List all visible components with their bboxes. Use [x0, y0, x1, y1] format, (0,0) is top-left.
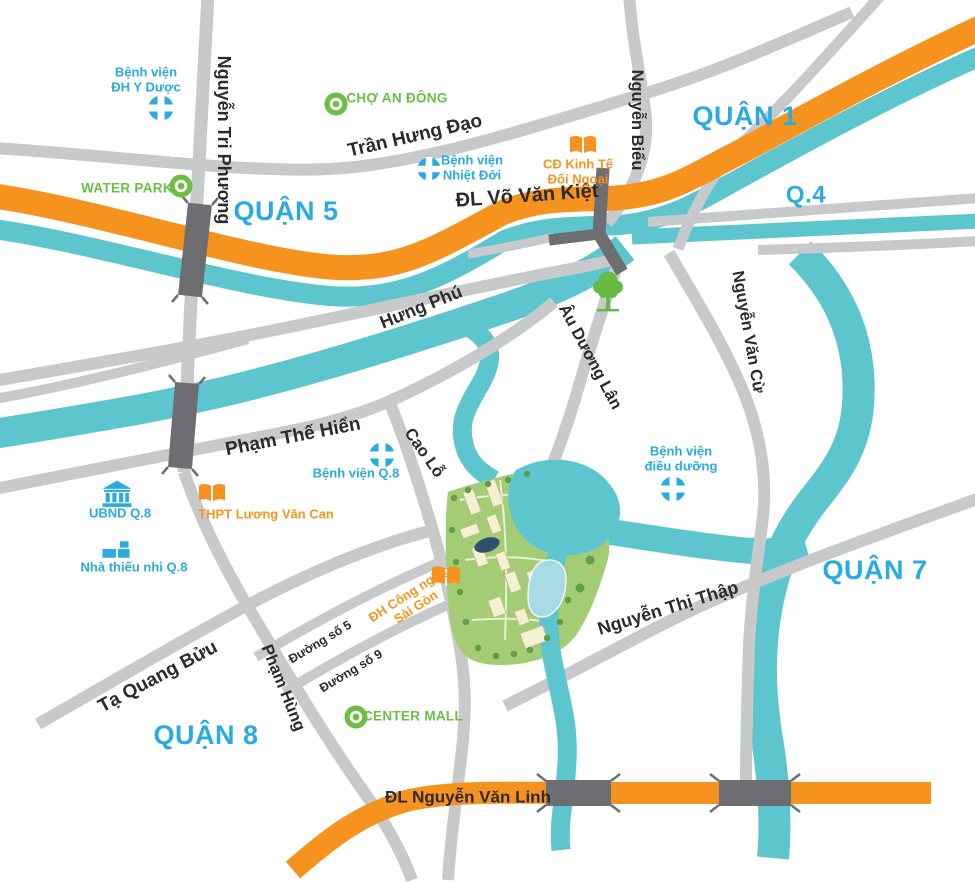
road-label-nguyen-tri-phuong: Nguyễn Tri Phương — [214, 56, 234, 225]
poi-label-bv-nhiet-doi: Bệnh viện Nhiệt Đới — [441, 153, 503, 182]
hospital-icon-dieu-duong — [660, 476, 686, 502]
hospital-icon-q8 — [369, 442, 395, 468]
bridge-junction-west — [549, 234, 599, 240]
district-label-q4: Q.4 — [786, 183, 826, 210]
poi-label-water-park: WATER PARK — [81, 180, 173, 195]
poi-label-thpt-luong-van-can: THPT Lương Văn Can — [198, 508, 334, 523]
poi-label-bv-dh-y-duoc: Bệnh viện ĐH Y Dược — [111, 65, 180, 94]
basemap-graphics — [0, 0, 975, 884]
bridge-ntp-north — [190, 204, 200, 296]
school-icon-thpt-luong-van-can — [198, 483, 226, 506]
district-label-q5: QUẬN 5 — [233, 196, 338, 226]
road-label-nguyen-van-linh: ĐL Nguyễn Văn Linh — [385, 787, 551, 806]
market-icon-cho-an-dong — [325, 93, 348, 116]
poi-label-bv-dieu-duong: Bệnh viện điều dưỡng — [645, 444, 718, 473]
map-canvas[interactable]: QUẬN 5 QUẬN 1 Q.4 QUẬN 7 QUẬN 8 Trần Hưn… — [0, 0, 975, 884]
tree-icon — [590, 270, 626, 316]
park-icon-water-park — [170, 175, 193, 198]
poi-label-cd-kinh-te: CĐ Kinh Tế Đối Ngoại — [543, 157, 613, 186]
district-label-q8: QUẬN 8 — [153, 720, 258, 750]
poi-label-ubnd-q8: UBND Q.8 — [89, 507, 151, 522]
district-label-q1: QUẬN 1 — [692, 101, 797, 131]
district-label-q7: QUẬN 7 — [822, 555, 927, 585]
poi-label-center-mall: CENTER MALL — [363, 708, 463, 723]
school-icon-cd-kinh-te — [569, 135, 597, 158]
poi-label-cho-an-dong: CHỢ AN ĐÔNG — [346, 90, 447, 105]
hospital-icon-dh-y-duoc — [148, 95, 174, 121]
youth-house-icon-nha-thieu-nhi — [103, 541, 132, 559]
road-label-nguyen-bieu: Nguyễn Biểu — [628, 70, 646, 171]
road-q4-lower — [758, 241, 975, 250]
bridge-ntp-south — [180, 383, 187, 468]
poi-label-bv-q8: Bệnh viện Q.8 — [313, 467, 400, 482]
hospital-icon-nhiet-doi — [417, 157, 441, 181]
government-icon-ubnd-q8 — [102, 481, 133, 508]
poi-label-nha-thieu-nhi: Nhà thiếu nhi Q.8 — [81, 561, 188, 576]
